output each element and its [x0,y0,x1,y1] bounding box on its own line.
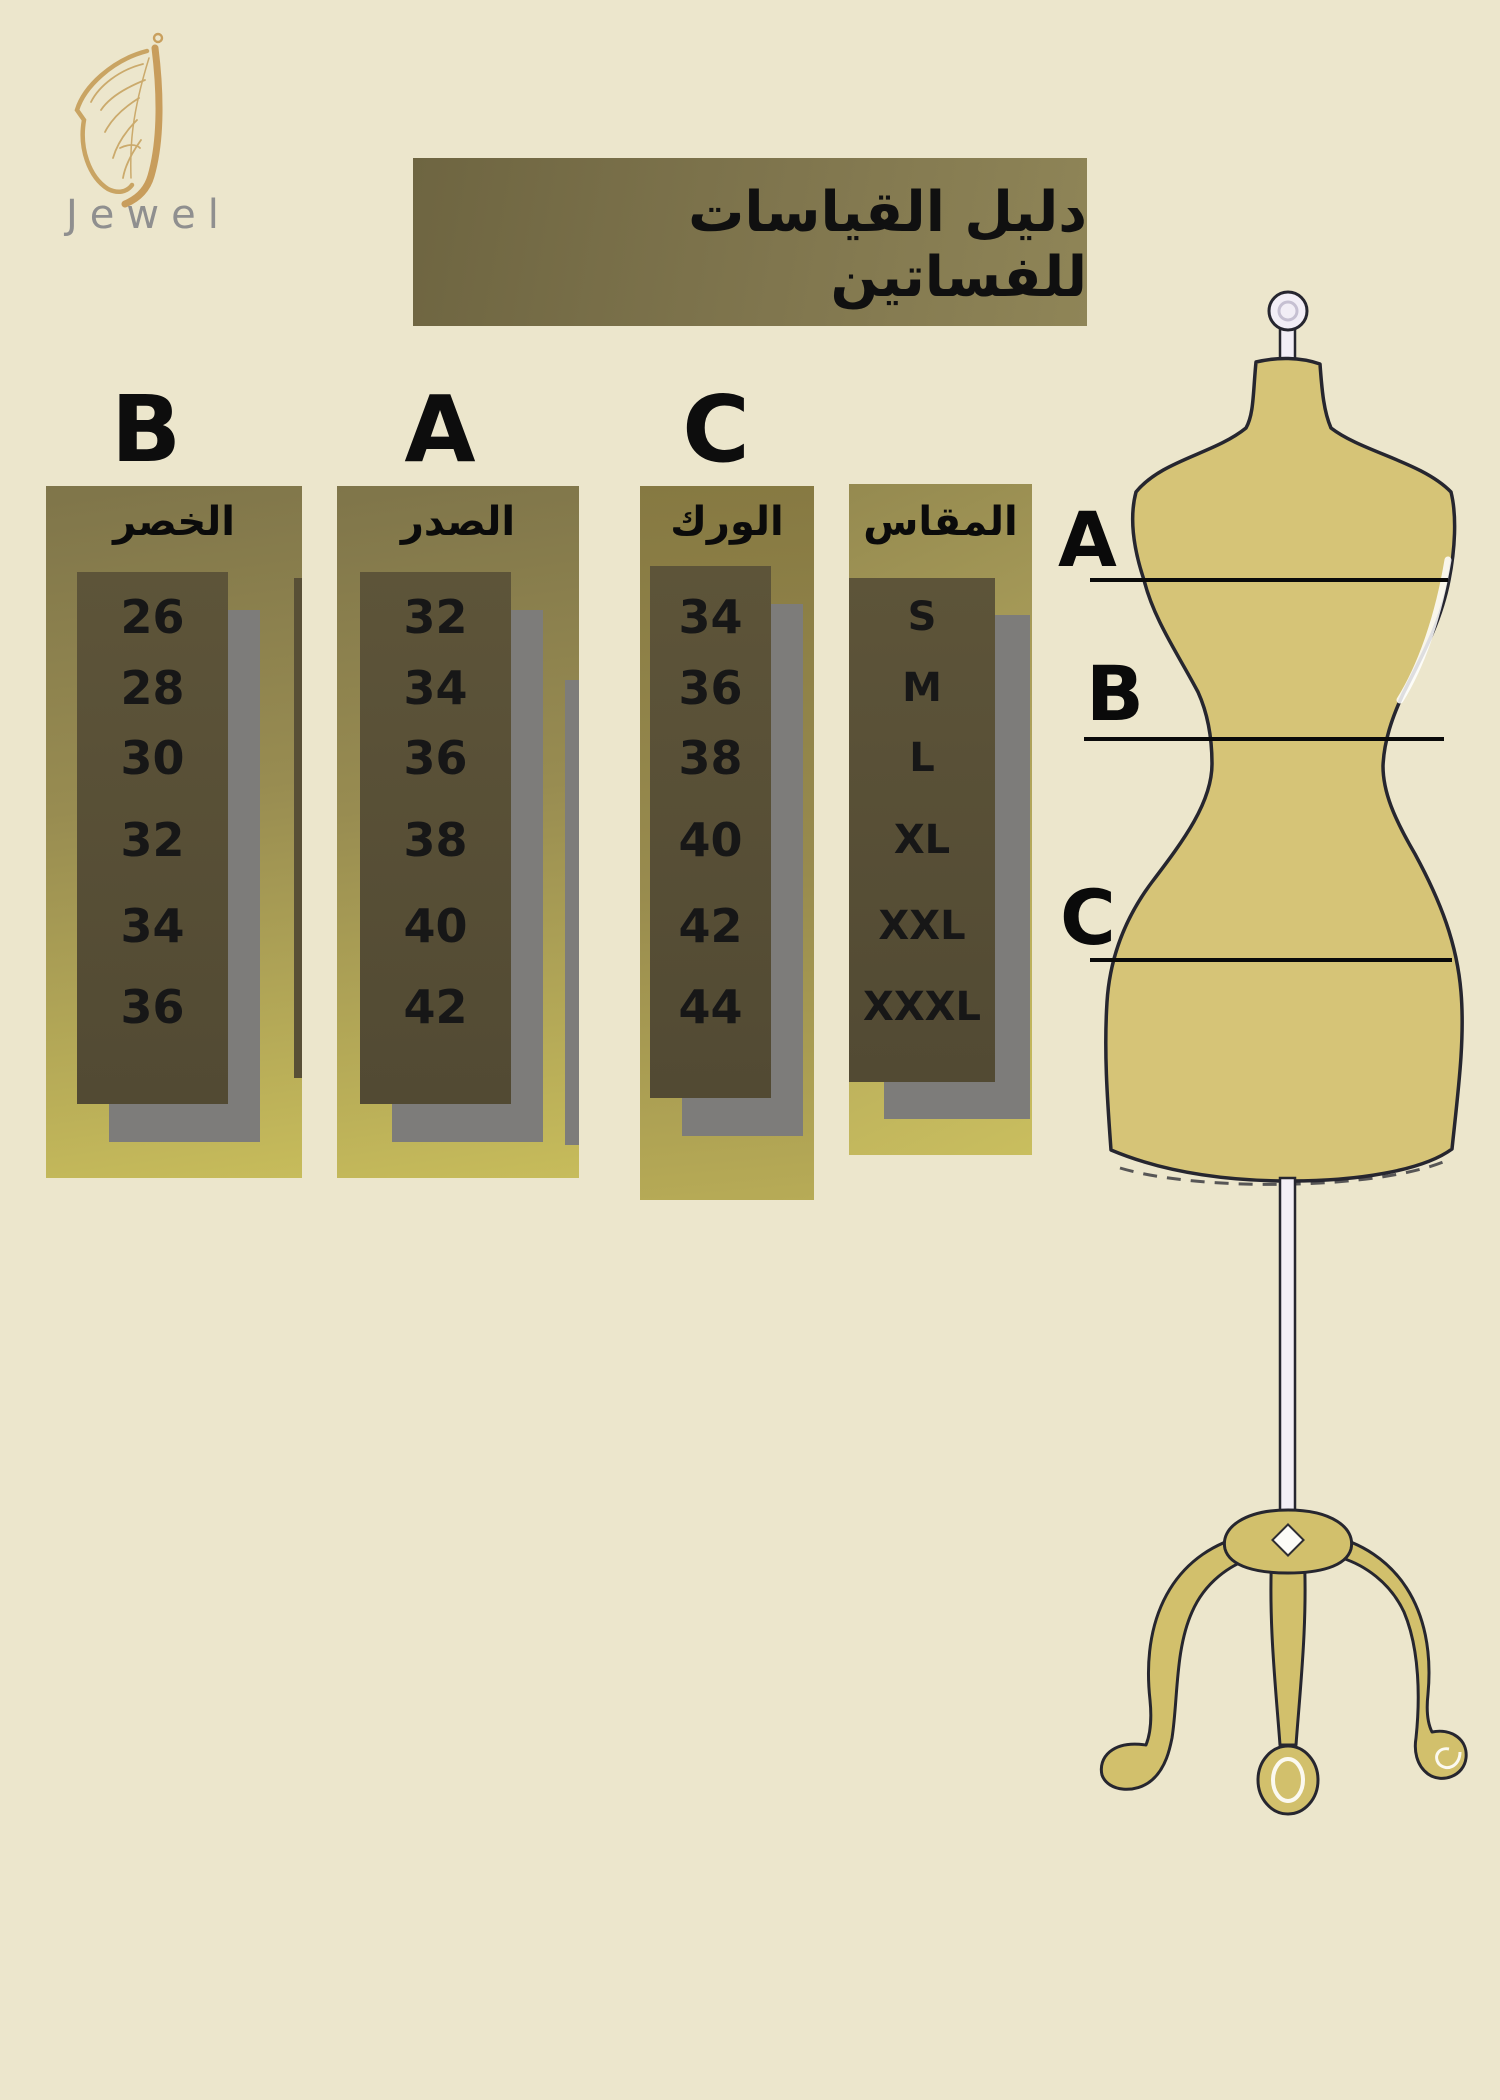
hip-value: 44 [650,975,771,1039]
size-column-header: المقاس [849,496,1032,548]
chest-value: 42 [360,975,511,1039]
measure-label-a: A [1058,502,1117,578]
waist-value: 34 [77,894,228,958]
chest-value: 36 [360,726,511,790]
size-guide-poster: Jewel دليل القياسات للفساتين B A C الخصر… [0,0,1500,2100]
measure-line-a [1090,578,1448,582]
page-title: دليل القياسات للفساتين [413,158,1087,326]
column-letter-a: A [337,384,543,476]
column-letter-b: B [46,384,246,476]
hip-value: 42 [650,894,771,958]
waist-value: 30 [77,726,228,790]
waist-column-edge-strip [294,578,302,1078]
size-value: M [849,656,995,720]
hip-value: 36 [650,656,771,720]
measure-line-b [1084,737,1444,741]
chest-value: 40 [360,894,511,958]
hip-value: 34 [650,585,771,649]
brand-name: Jewel [66,192,286,238]
size-value: L [849,726,995,790]
size-value: XXXL [849,975,995,1039]
waist-value: 36 [77,975,228,1039]
hip-value: 40 [650,808,771,872]
chest-value: 32 [360,585,511,649]
column-letter-c: C [640,384,792,476]
waist-value: 26 [77,585,228,649]
dress-form-mannequin [1050,270,1500,1830]
hip-value: 38 [650,726,771,790]
butterfly-wing-icon [58,28,203,208]
measure-label-c: C [1060,880,1116,956]
size-value: S [849,585,995,649]
waist-column-header: الخصر [46,496,302,548]
measure-label-b: B [1086,656,1144,732]
size-value: XL [849,808,995,872]
size-value: XXL [849,894,995,958]
waist-value: 32 [77,808,228,872]
chest-value: 38 [360,808,511,872]
chest-column-header: الصدر [337,496,579,548]
measure-line-c [1090,958,1452,962]
title-banner: دليل القياسات للفساتين [413,158,1087,326]
chest-value: 34 [360,656,511,720]
chest-column-edge-strip [565,680,579,1145]
hip-column-header: الورك [640,496,814,548]
waist-value: 28 [77,656,228,720]
